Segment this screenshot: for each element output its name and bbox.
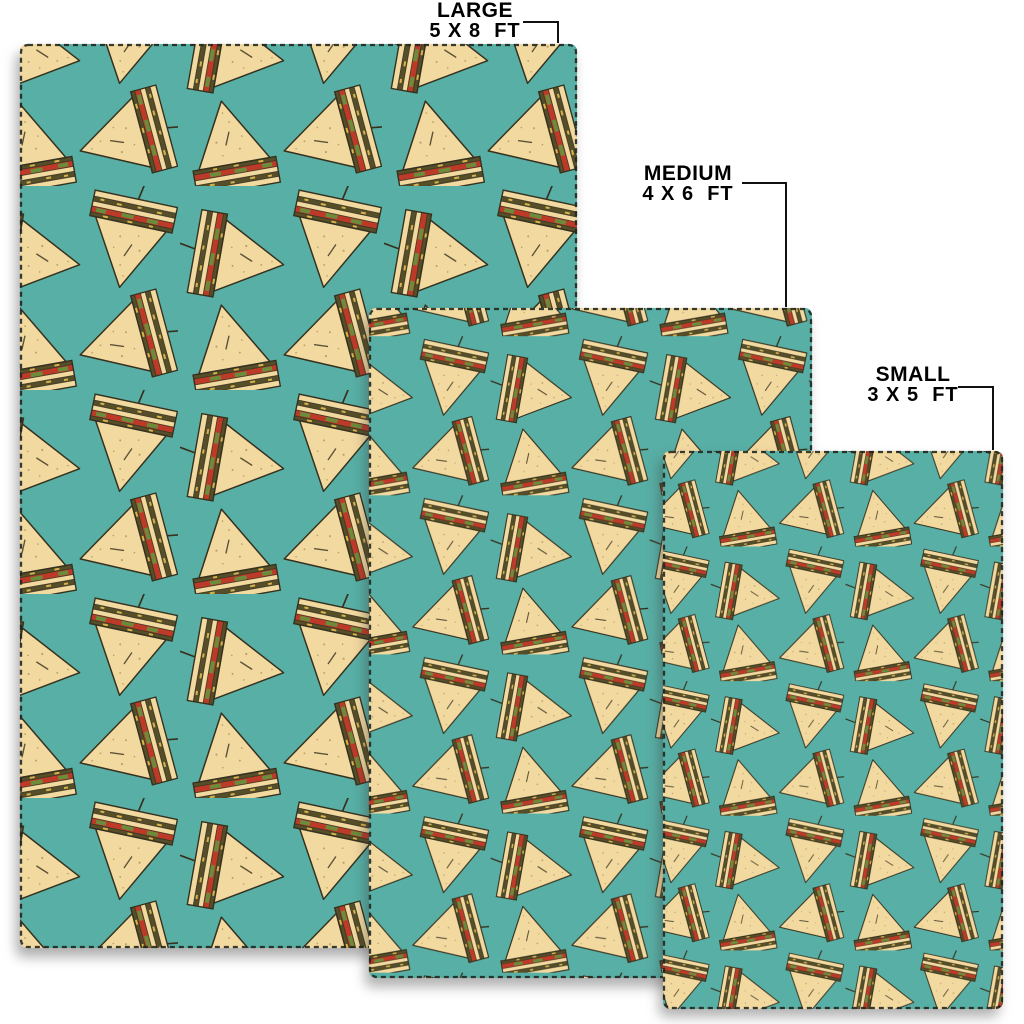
size-label-small: SMALL 3 X 5 FT <box>838 365 988 405</box>
size-name-medium: MEDIUM <box>613 164 763 184</box>
rug-size-comparison: LARGE 5 X 8 FT MEDIUM 4 X 6 FT SMALL 3 X… <box>0 0 1024 1024</box>
size-dimensions-small: 3 X 5 FT <box>838 385 988 405</box>
size-label-medium: MEDIUM 4 X 6 FT <box>613 164 763 204</box>
size-dimensions-large: 5 X 8 FT <box>400 21 550 41</box>
size-label-large: LARGE 5 X 8 FT <box>400 1 550 41</box>
size-dimensions-medium: 4 X 6 FT <box>613 184 763 204</box>
size-name-small: SMALL <box>838 365 988 385</box>
size-name-large: LARGE <box>400 1 550 21</box>
rug-small <box>663 451 1003 1009</box>
product-scene <box>0 0 1024 1024</box>
